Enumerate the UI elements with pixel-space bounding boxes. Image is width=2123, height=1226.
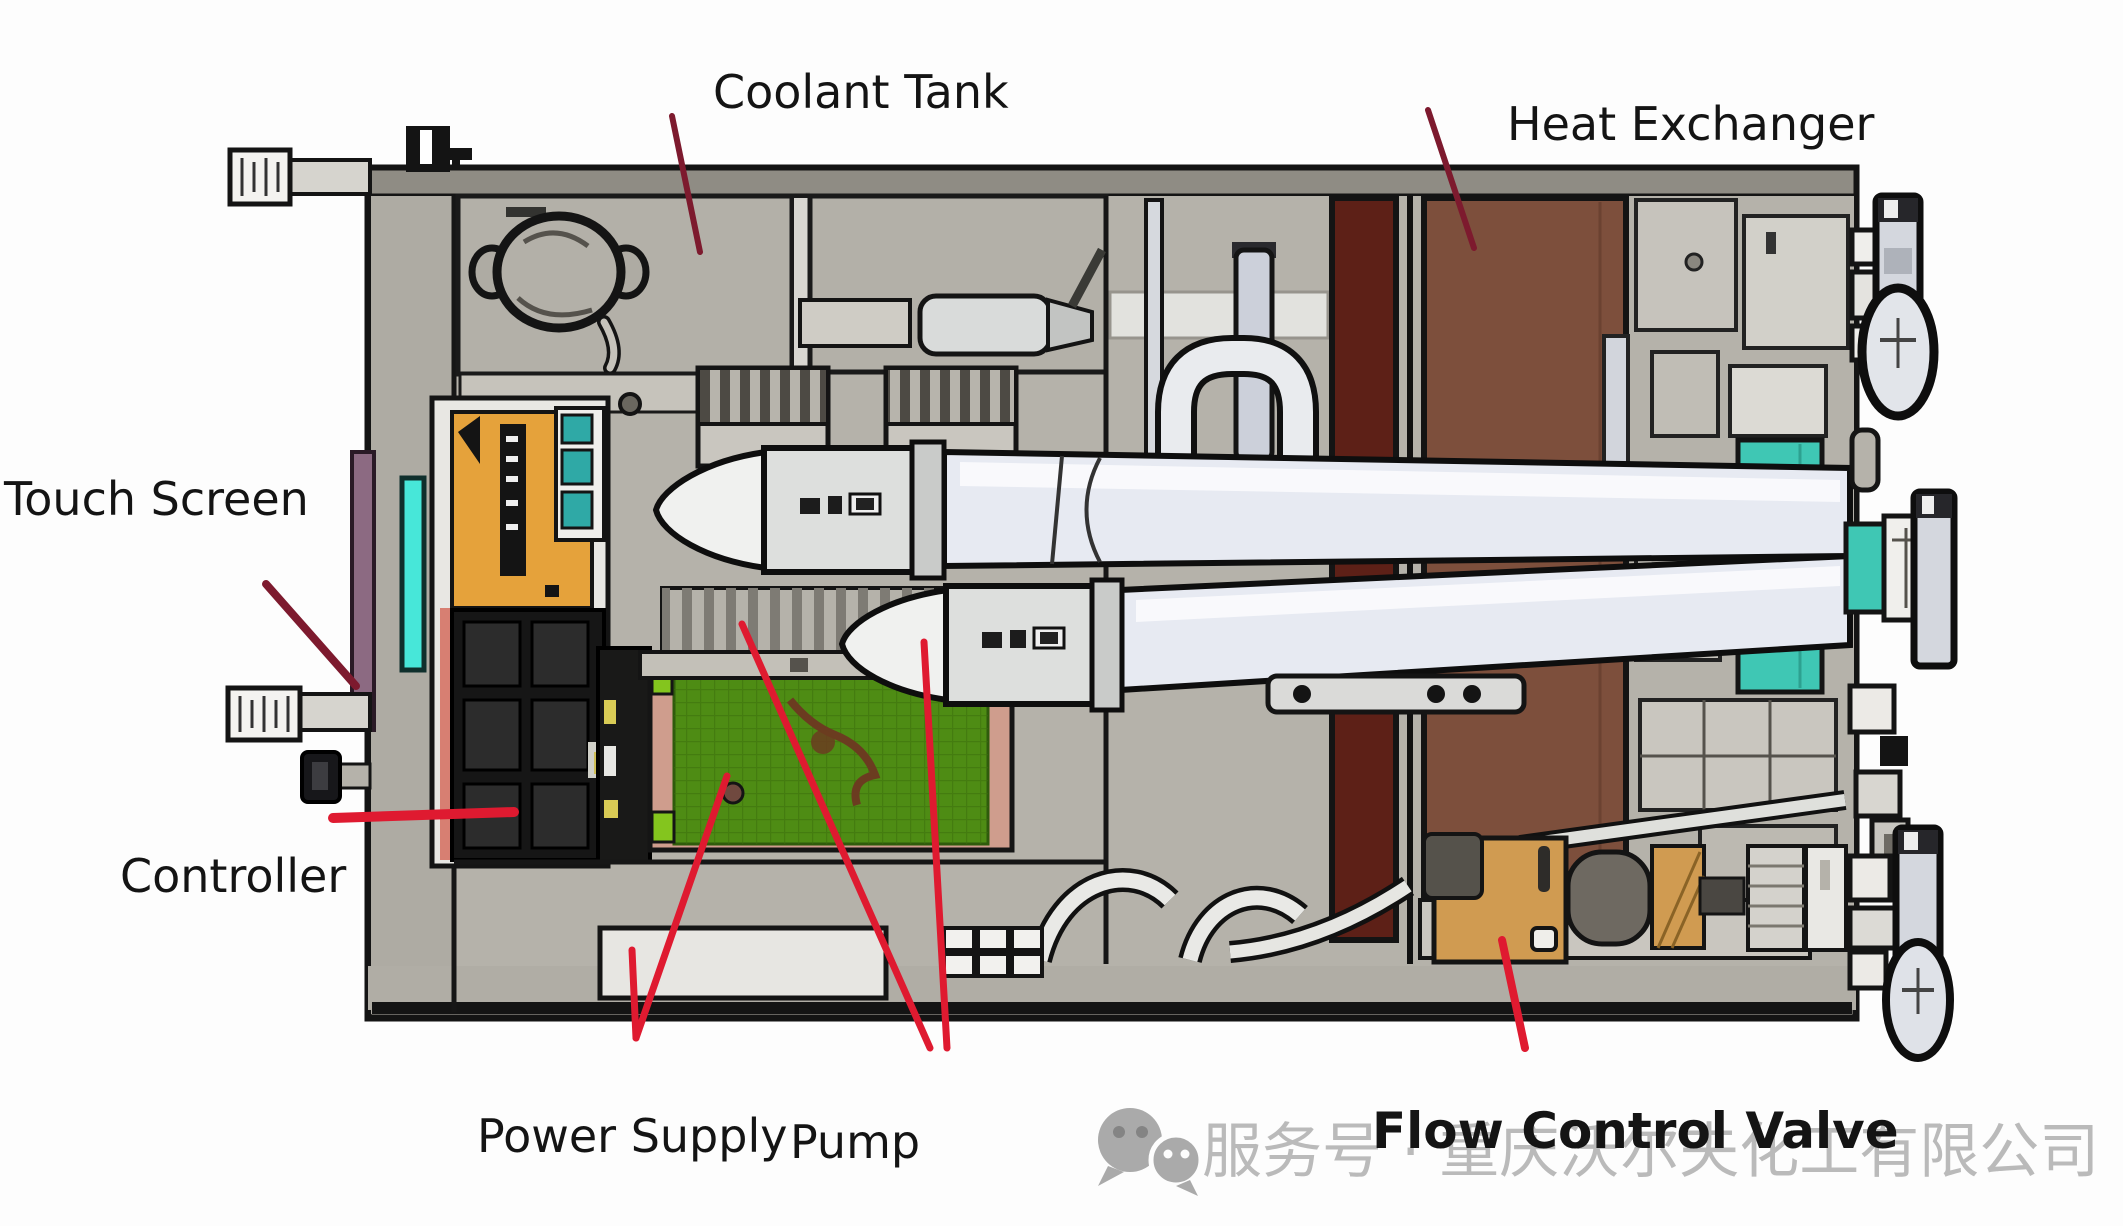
electronics-bay <box>432 398 608 866</box>
sight-glass-bottom <box>1850 828 1950 1058</box>
diagram-canvas: 服务号 · 重庆沃尔夫化工有限公司 Coolant Tank Heat Exch… <box>0 0 2123 1226</box>
label-controller: Controller <box>120 849 346 903</box>
valve-body <box>920 296 1050 354</box>
mounting-bar <box>1268 676 1524 712</box>
scale-plate-top <box>230 150 290 204</box>
chassis-top-band <box>368 168 1856 196</box>
controller-unit <box>452 610 604 860</box>
bottom-tray <box>600 928 886 998</box>
io-tabs-panel <box>556 408 604 540</box>
pump-assembly-1 <box>656 442 1850 578</box>
sight-glass-top <box>1862 196 1934 416</box>
touch-screen-strip <box>402 478 424 670</box>
leader-power-supply-b <box>632 950 636 1038</box>
label-touch-screen: Touch Screen <box>3 472 309 526</box>
heat-exchanger-maroon-panel <box>1332 198 1396 940</box>
label-coolant-tank: Coolant Tank <box>713 65 1009 119</box>
chiller-cutaway-diagram: 服务号 · 重庆沃尔夫化工有限公司 Coolant Tank Heat Exch… <box>0 0 2123 1226</box>
leader-touch-screen <box>266 584 356 686</box>
terminal-grid <box>944 928 1042 976</box>
right-edge-fittings <box>1846 196 1954 1058</box>
label-heat-exchanger: Heat Exchanger <box>1507 97 1875 151</box>
wechat-icon <box>1098 1108 1201 1196</box>
leader-controller <box>333 812 514 818</box>
label-power-supply: Power Supply <box>477 1109 787 1163</box>
coolant-port-teal <box>1846 492 1954 666</box>
valve-dome <box>1568 852 1650 944</box>
label-pump: Pump <box>790 1115 920 1169</box>
label-flow-control-valve: Flow Control Valve <box>1372 1102 1899 1160</box>
